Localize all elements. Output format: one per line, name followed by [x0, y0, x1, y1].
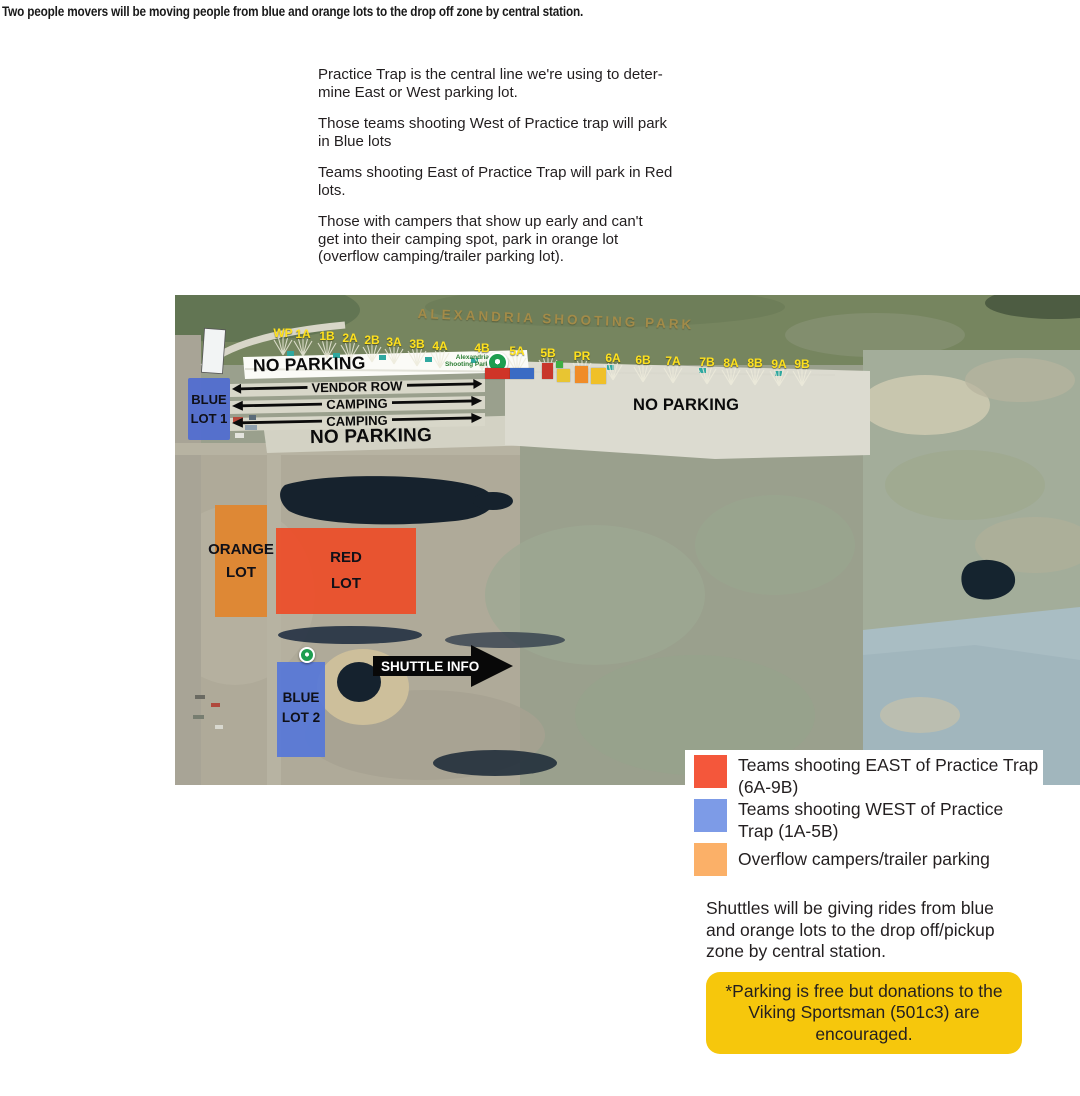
info-panel: Teams shooting EAST of Practice Trap (6A…: [685, 750, 1043, 1096]
station-label-5a: 5A: [509, 344, 524, 358]
station-label-3a: 3A: [386, 335, 401, 349]
legend-row-overflow: Overflow campers/trailer parking: [694, 843, 990, 876]
station-label-8a: 8A: [723, 356, 738, 370]
station-marker-green-box: [556, 361, 563, 368]
blue-lot-1-overlay: BLUE LOT 1: [188, 378, 230, 440]
instruction-campers-orange: Those with campers that show up early an…: [318, 213, 674, 266]
shuttle-info-label: SHUTTLE INFO: [381, 659, 479, 674]
station-label-5b: 5B: [540, 346, 555, 360]
vendor-row-label: VENDOR ROW: [307, 378, 406, 395]
parking-flyer: { "top_note": "Two people movers will be…: [0, 0, 1080, 801]
station-label-wp: WP: [273, 326, 292, 340]
shuttle-note: Shuttles will be giving rides from blue …: [706, 898, 1036, 963]
legend-label-east: Teams shooting EAST of Practice Trap (6A…: [738, 755, 1038, 798]
station-label-8b: 8B: [747, 356, 762, 370]
right-arrow-icon: [406, 379, 482, 391]
red-lot-overlay: RED LOT: [276, 528, 416, 614]
station-label-7b: 7B: [699, 355, 714, 369]
top-note: Two people movers will be moving people …: [2, 3, 583, 19]
right-arrow-icon: [392, 396, 482, 408]
station-label-6a: 6A: [605, 351, 620, 365]
donation-note-box: *Parking is free but donations to the Vi…: [706, 972, 1022, 1054]
station-label-4a: 4A: [432, 339, 447, 353]
station-label-1b: 1B: [319, 329, 334, 343]
instruction-east-red: Teams shooting East of Practice Trap wil…: [318, 164, 674, 199]
instruction-practice-trap: Practice Trap is the central line we're …: [318, 66, 674, 101]
drop-zone-marker-red: [485, 368, 510, 379]
station-marker-orange-box: [575, 366, 588, 383]
legend-label-overflow: Overflow campers/trailer parking: [738, 849, 990, 876]
drop-zone-marker-blue: [510, 368, 534, 379]
camping-label-1: CAMPING: [322, 395, 392, 411]
station-marker-yellow-box-2: [591, 368, 606, 384]
legend-row-west: Teams shooting WEST of Practice Trap (1A…: [694, 799, 1003, 842]
legend-swatch-west: [694, 799, 727, 832]
park-poi-label: Alexandria Shooting Park: [427, 354, 489, 368]
legend-label-west: Teams shooting WEST of Practice Trap (1A…: [738, 799, 1003, 842]
orange-lot-overlay: ORANGE LOT: [215, 505, 267, 617]
station-marker-yellow-box: [557, 369, 570, 382]
legend-row-east: Teams shooting EAST of Practice Trap (6A…: [694, 755, 1038, 798]
left-arrow-icon: [232, 416, 322, 428]
station-label-4b: 4B: [474, 341, 489, 355]
station-label-3b: 3B: [409, 337, 424, 351]
instruction-west-blue: Those teams shooting West of Practice tr…: [318, 115, 674, 150]
map-region: WP1A1B2A2B3A3B4A4B5A5BPR6A6B7A7B8A8B9A9B…: [175, 295, 1080, 785]
no-parking-bottom-label: NO PARKING: [310, 425, 432, 449]
instructions-block: Practice Trap is the central line we're …: [318, 66, 674, 280]
left-arrow-icon: [232, 399, 322, 411]
left-arrow-icon: [232, 382, 308, 394]
no-parking-right-label: NO PARKING: [633, 396, 739, 415]
blue-lot-2-overlay: BLUE LOT 2: [277, 662, 325, 757]
station-label-2a: 2A: [342, 331, 357, 345]
shuttle-info-arrow: SHUTTLE INFO: [373, 644, 515, 688]
right-arrow-icon: [392, 413, 482, 425]
map-pin-icon-greenwood: [299, 647, 315, 663]
station-label-6b: 6B: [635, 353, 650, 367]
no-parking-top-label: NO PARKING: [253, 353, 366, 377]
legend-swatch-overflow: [694, 843, 727, 876]
station-label-9b: 9B: [794, 357, 809, 371]
station-label-2b: 2B: [364, 333, 379, 347]
legend-swatch-east: [694, 755, 727, 788]
station-label-pr: PR: [574, 349, 591, 363]
station-label-1a: 1A: [295, 327, 310, 341]
station-label-7a: 7A: [665, 354, 680, 368]
station-marker-red-box: [542, 363, 553, 379]
station-label-9a: 9A: [771, 357, 786, 371]
